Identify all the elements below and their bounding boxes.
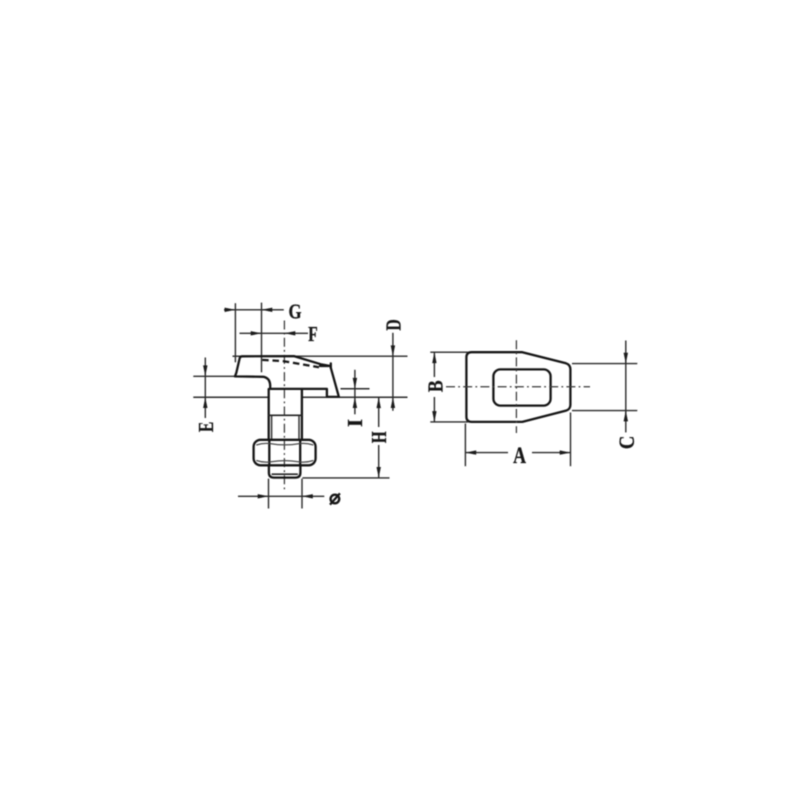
svg-text:E: E: [195, 422, 219, 433]
svg-text:G: G: [288, 301, 301, 324]
svg-text:A: A: [513, 444, 526, 469]
svg-text:C: C: [616, 436, 640, 450]
svg-text:F: F: [308, 323, 318, 347]
svg-text:B: B: [425, 380, 448, 392]
svg-text:H: H: [368, 431, 391, 443]
svg-text:D: D: [382, 319, 406, 330]
svg-text:I: I: [343, 419, 367, 427]
